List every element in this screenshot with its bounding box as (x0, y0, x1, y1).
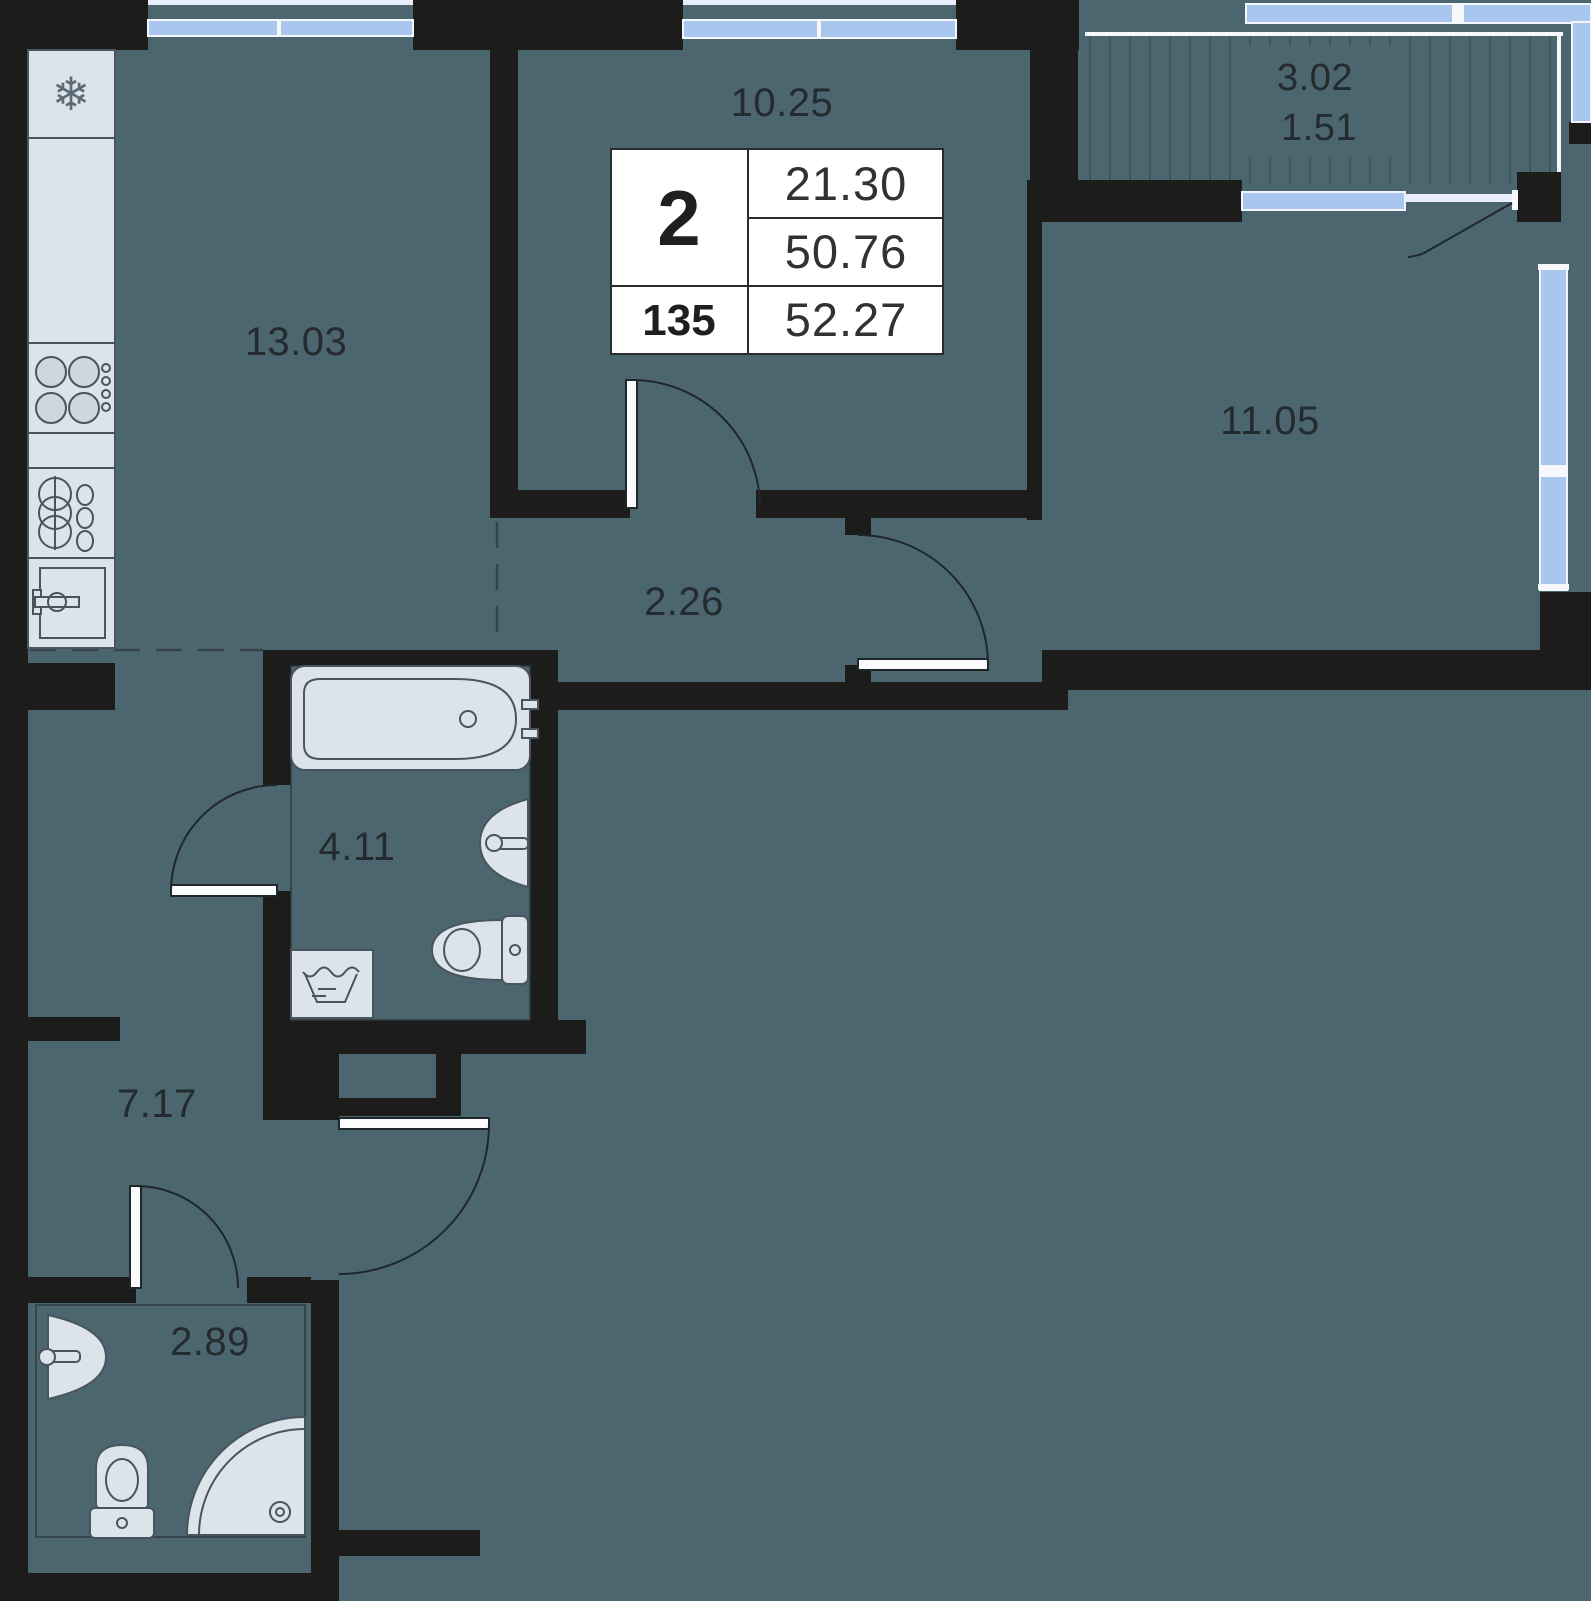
stove-icon (28, 343, 115, 433)
room-label-corridor: 7.17 (117, 1082, 197, 1126)
kitchen-fixtures: ❄ (28, 50, 115, 648)
rooms-count: 2 (657, 174, 700, 262)
room-label-hallway: 2.26 (644, 580, 724, 624)
room-label-bathroom: 4.11 (319, 825, 396, 869)
oven-icon (28, 558, 115, 648)
fridge-icon: ❄ (28, 50, 115, 138)
area-value: 50.76 (785, 225, 908, 278)
window-bedroom (1538, 264, 1569, 590)
floor-plan: ❄ (0, 0, 1591, 1601)
room-label-balcony: 3.02 (1277, 57, 1353, 99)
apartment-info-card: 2 135 21.30 50.76 52.27 (611, 149, 943, 354)
room-label-kitchen: 13.03 (245, 320, 348, 364)
room-label-balcony-reduced: 1.51 (1281, 107, 1357, 149)
total-area-value: 52.27 (785, 293, 908, 346)
kitchen-counter (28, 138, 115, 343)
room-label-wc: 2.89 (170, 1320, 250, 1364)
washing-machine-icon (291, 950, 373, 1018)
bathtub-icon (291, 666, 538, 770)
kitchen-counter (28, 433, 115, 468)
wc-toilet-icon (90, 1445, 154, 1538)
snowflake-icon: ❄ (52, 68, 91, 120)
room-label-bedroom: 11.05 (1220, 399, 1320, 443)
room-label-living-room: 10.25 (731, 81, 834, 125)
living-area-value: 21.30 (785, 157, 908, 210)
apartment-number: 135 (642, 296, 715, 345)
kitchen-sink-icon (28, 468, 115, 558)
